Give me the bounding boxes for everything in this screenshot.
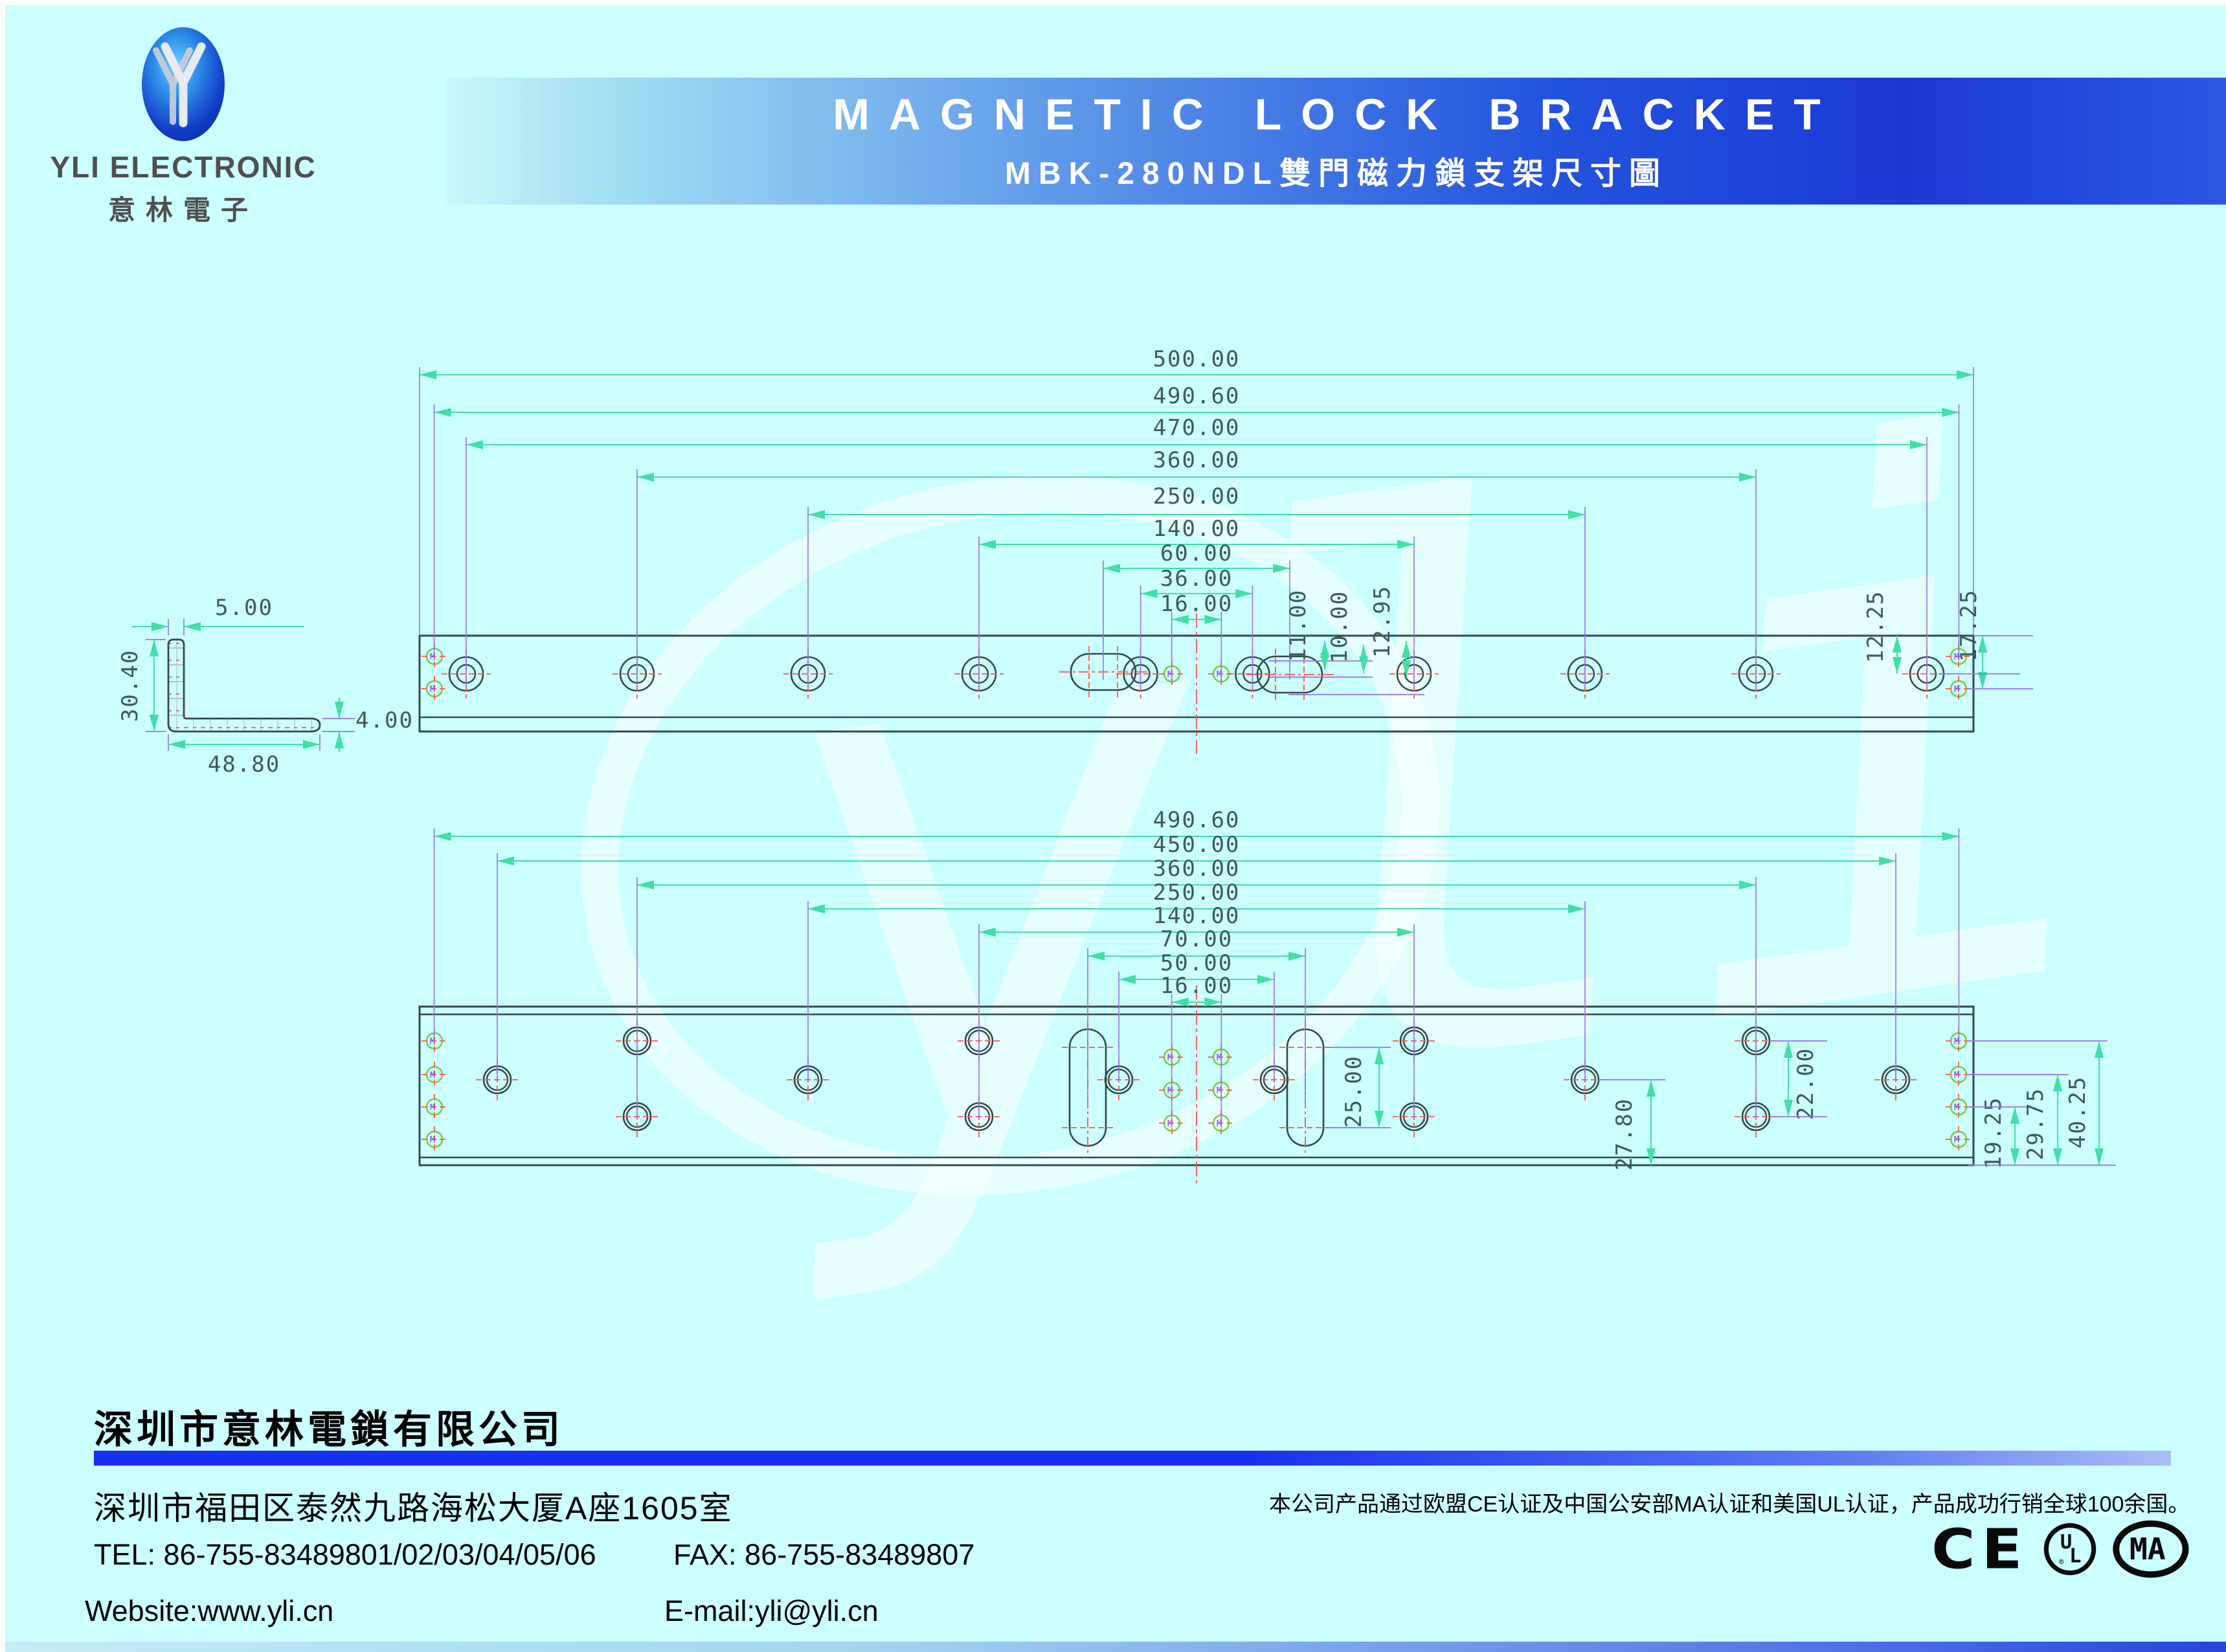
ma-mark-icon: MA <box>2112 1517 2190 1581</box>
dimension-label: 40.25 <box>2065 1076 2091 1148</box>
page-title: MAGNETIC LOCK BRACKET <box>447 89 2226 140</box>
screw-hole-mark: M <box>430 1071 435 1080</box>
bottom-gradient-strip <box>5 1642 2226 1652</box>
screw-hole-mark: M <box>1954 1071 1959 1080</box>
dimension-label: 12.25 <box>1863 590 1889 663</box>
brand-name-cn: 意林電子 <box>21 188 345 228</box>
dimension-label: 5.00 <box>215 595 273 621</box>
dimension-label: 27.80 <box>1612 1098 1637 1170</box>
screw-hole-mark: M <box>430 1135 435 1145</box>
dimension-label: 250.00 <box>1153 484 1241 509</box>
company-name: 深圳市意林電鎖有限公司 <box>94 1398 564 1455</box>
dimension-label: 48.80 <box>208 752 280 777</box>
dimension-arrowhead <box>2053 1148 2062 1165</box>
bracket-cross-section <box>168 640 320 731</box>
dimension-arrowhead <box>434 832 451 841</box>
dimension-label: 250.00 <box>1153 880 1241 906</box>
dimension-label: 11.00 <box>1285 589 1311 662</box>
dimension-arrowhead <box>2010 1148 2019 1165</box>
screw-hole-mark: M <box>1954 1135 1959 1145</box>
ce-mark-icon: CE <box>1931 1517 2029 1581</box>
dimension-label: 17.25 <box>1956 589 1982 662</box>
dimension-arrowhead <box>150 715 159 731</box>
ul-mark-icon: U L ® <box>2043 1519 2098 1580</box>
screw-hole-mark: M <box>1954 685 1959 695</box>
certification-logos: CE U L ® MA <box>1931 1520 2190 1578</box>
dimension-label: 16.00 <box>1160 973 1233 999</box>
yli-logo-icon <box>125 25 242 144</box>
dimension-arrowhead <box>637 473 654 482</box>
title-banner: MAGNETIC LOCK BRACKET MBK-280NDL雙門磁力鎖支架尺… <box>447 78 2226 205</box>
dimension-arrowhead <box>420 370 436 379</box>
dimension-label: 30.40 <box>117 649 143 722</box>
dimension-label: 490.60 <box>1153 807 1241 833</box>
footer-divider-bar <box>94 1451 2171 1466</box>
dimension-label: 490.60 <box>1153 383 1241 409</box>
dimension-arrowhead <box>335 731 344 748</box>
dimension-label: 25.00 <box>1341 1055 1367 1128</box>
dimension-label: 500.00 <box>1153 346 1241 372</box>
dimension-label: 22.00 <box>1793 1047 1819 1120</box>
dimension-label: 140.00 <box>1153 903 1241 929</box>
svg-text:MA: MA <box>2130 1532 2166 1567</box>
dimension-arrowhead <box>184 622 201 631</box>
page-subtitle: MBK-280NDL雙門磁力鎖支架尺寸圖 <box>447 148 2226 193</box>
fax-number: FAX: 86-755-83489807 <box>673 1538 974 1572</box>
dimension-label: 10.00 <box>1327 590 1353 663</box>
dimension-label: 36.00 <box>1160 566 1233 592</box>
dimension-arrowhead <box>168 740 185 749</box>
dimension-arrowhead <box>2095 1148 2104 1165</box>
svg-text:L: L <box>2070 1545 2082 1567</box>
email-address: E-mail:yli@yli.cn <box>664 1594 879 1628</box>
dimension-arrowhead <box>152 622 168 631</box>
screw-hole-mark: M <box>430 685 435 695</box>
dimension-label: 470.00 <box>1153 415 1241 441</box>
screw-hole-mark: M <box>1954 1103 1959 1113</box>
svg-text:®: ® <box>2059 1557 2064 1567</box>
dimension-label: 70.00 <box>1160 926 1233 952</box>
website-url: Website:www.yli.cn <box>85 1594 333 1628</box>
brand-block: YLI ELECTRONIC 意林電子 <box>21 25 345 228</box>
dimension-label: 450.00 <box>1153 832 1241 858</box>
dimension-label: 360.00 <box>1153 447 1241 473</box>
datasheet-page: yli MMMMMM500.00490.60470.00360.00250.00… <box>5 5 2226 1652</box>
certification-note: 本公司产品通过欧盟CE认证及中国公安部MA认证和美国UL认证，产品成功行销全球1… <box>1269 1486 2190 1518</box>
dimension-label: 12.95 <box>1369 585 1395 658</box>
dimension-arrowhead <box>303 740 320 749</box>
dimension-label: 60.00 <box>1160 541 1233 566</box>
dimension-label: 360.00 <box>1153 856 1241 882</box>
dimension-arrowhead <box>497 856 514 865</box>
tel-number: TEL: 86-755-83489801/02/03/04/05/06 <box>94 1538 596 1572</box>
dimension-arrowhead <box>434 408 451 417</box>
company-address: 深圳市福田区泰然九路海松大厦A座1605室 <box>94 1482 733 1529</box>
dimension-label: 29.75 <box>2023 1088 2049 1160</box>
dimension-arrowhead <box>637 880 654 889</box>
brand-name: YLI ELECTRONIC <box>21 150 345 184</box>
dimension-label: 4.00 <box>355 708 414 733</box>
dimension-label: 140.00 <box>1153 516 1241 542</box>
dimension-arrowhead <box>150 640 159 656</box>
dimension-arrowhead <box>335 702 344 719</box>
dimension-label: 16.00 <box>1160 591 1233 617</box>
screw-hole-mark: M <box>430 1103 435 1113</box>
dimension-label: 50.00 <box>1160 950 1233 976</box>
dimension-arrowhead <box>466 440 483 449</box>
